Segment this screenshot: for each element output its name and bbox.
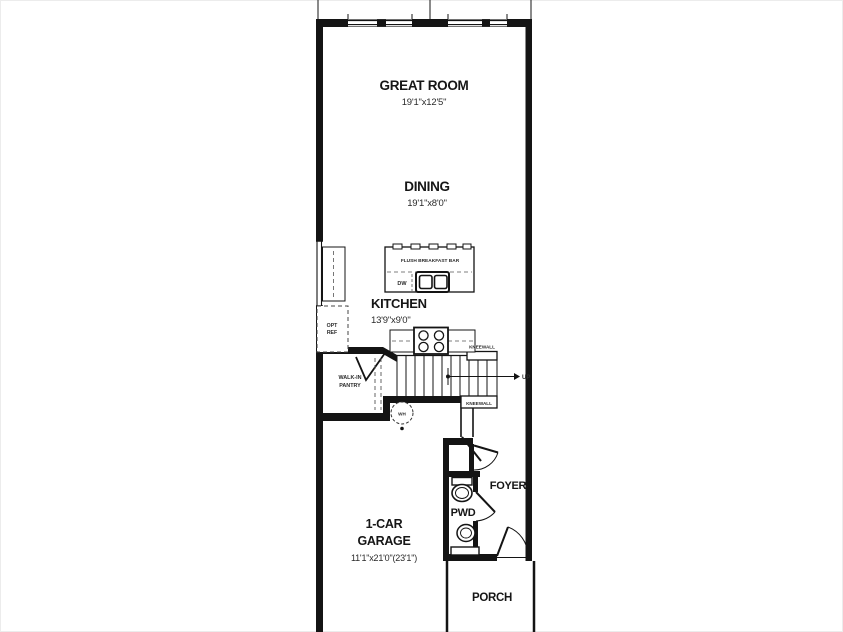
front-door [497, 527, 528, 556]
window-top-right [448, 20, 507, 27]
dining-dims: 19'1"x8'0" [407, 198, 447, 209]
front-wall-right [528, 554, 532, 561]
water-heater-label: WH [398, 412, 406, 417]
pwd-top-wall [443, 471, 480, 477]
pantry-label-1: WALK-IN [338, 375, 361, 381]
pwd-right-wall-upper [473, 477, 478, 492]
opt-ref-label-1: OPT [327, 323, 338, 329]
pantry-label-2: PANTRY [339, 383, 361, 389]
garage-dims: 11'1"x21'0"(23'1") [351, 553, 417, 563]
garage-foyer-wall [443, 440, 449, 560]
foyer-label: FOYER [490, 480, 527, 492]
window-left-kitchen [316, 241, 323, 306]
garage-label-2: GARAGE [357, 534, 410, 548]
exterior-walls [316, 0, 532, 632]
kneewall-upper-rect [467, 352, 497, 361]
window-top-left [348, 20, 412, 27]
floorplan-drawing: GREAT ROOM 19'1"x12'5" DINING 19'1"x8'0"… [0, 0, 843, 632]
dimension-ticks [318, 0, 531, 19]
pantry-bottom-wall [316, 413, 390, 421]
stair-bottom-wall [383, 396, 461, 403]
kneewall-upper-label: KNEEWALL [469, 345, 495, 350]
right-wall [526, 19, 533, 561]
kneewall-lower-label: KNEEWALL [466, 401, 492, 406]
left-counter [323, 247, 346, 301]
pwd-label: PWD [451, 507, 476, 519]
breakfast-bar-label: FLUSH BREAKFAST BAR [401, 258, 460, 264]
opt-ref-label-2: REF [327, 330, 337, 336]
up-arrow [446, 368, 520, 385]
dishwasher-label: DW [397, 281, 407, 287]
garage-label-1: 1-CAR [366, 517, 403, 531]
kitchen-sink [416, 272, 449, 292]
kitchen-dims: 13'9"x9'0" [371, 315, 411, 326]
dining-label: DINING [404, 179, 449, 194]
range-stove [414, 328, 448, 355]
foyer-pwd [451, 446, 528, 557]
optional-refrigerator [317, 306, 348, 352]
left-wall-lower [316, 306, 323, 632]
bottom-counter [390, 328, 475, 355]
arrow-head-icon [514, 373, 520, 380]
up-label: UP [522, 375, 530, 381]
left-wall-upper [316, 19, 323, 241]
toilet [452, 478, 472, 502]
pwd-door [476, 492, 495, 521]
porch-label: PORCH [472, 592, 512, 604]
great-room-dims: 19'1"x12'5" [402, 97, 447, 108]
walk-in-pantry [356, 353, 385, 410]
kitchen-label: KITCHEN [371, 296, 427, 311]
great-room-label: GREAT ROOM [380, 78, 469, 93]
floorplan-page: GREAT ROOM 19'1"x12'5" DINING 19'1"x8'0"… [0, 0, 843, 632]
